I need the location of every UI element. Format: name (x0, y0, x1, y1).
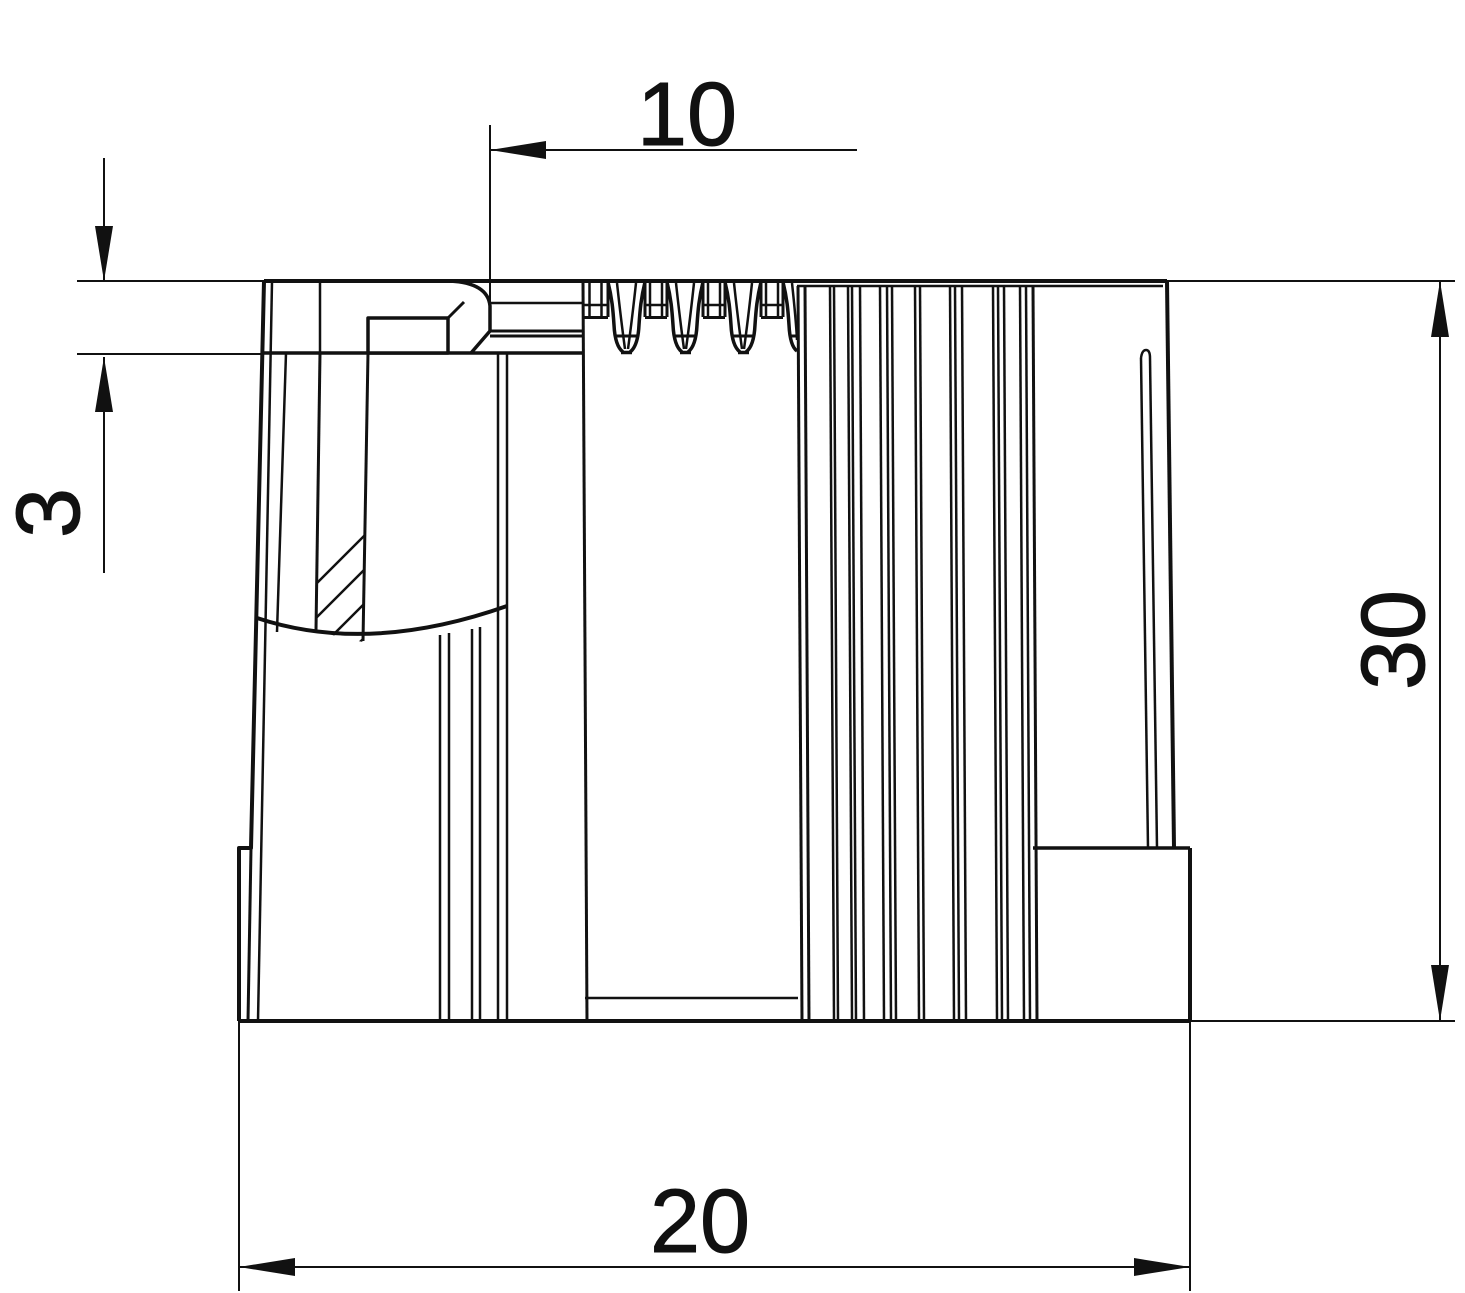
dim-20-label: 20 (650, 1172, 750, 1272)
cap-top-edge (264, 281, 1167, 286)
dimension-3 (77, 158, 264, 573)
knurl-ribs (798, 286, 1037, 1021)
neck-profile (490, 303, 583, 336)
arrow-up-icon (1431, 281, 1449, 337)
dim-30-label: 30 (1344, 590, 1444, 690)
keyway-recess (368, 318, 448, 353)
section-hatch-skirt (140, 120, 1154, 760)
arrow-down-icon (95, 226, 113, 281)
arrow-left-icon (239, 1258, 295, 1276)
section-hatch-rim (140, 120, 1154, 760)
cap-section-drawing: 10 3 30 20 (0, 0, 1465, 1293)
dim-3-label: 3 (0, 488, 99, 538)
dim-10-label: 10 (637, 65, 737, 165)
cap-left-wall (239, 281, 368, 1021)
cap-body (140, 120, 1190, 1021)
arrow-left-icon (490, 141, 546, 159)
arrow-down-icon (1431, 965, 1449, 1021)
right-face (1141, 281, 1174, 848)
inner-dome-curve (257, 606, 507, 634)
crown-slots (583, 282, 797, 1021)
arrow-up-icon (95, 357, 113, 412)
inner-wall-lines (440, 353, 798, 1021)
bottom-collar (239, 848, 1190, 1021)
arrow-right-icon (1134, 1258, 1190, 1276)
technical-drawing-canvas: 10 3 30 20 (0, 0, 1465, 1293)
